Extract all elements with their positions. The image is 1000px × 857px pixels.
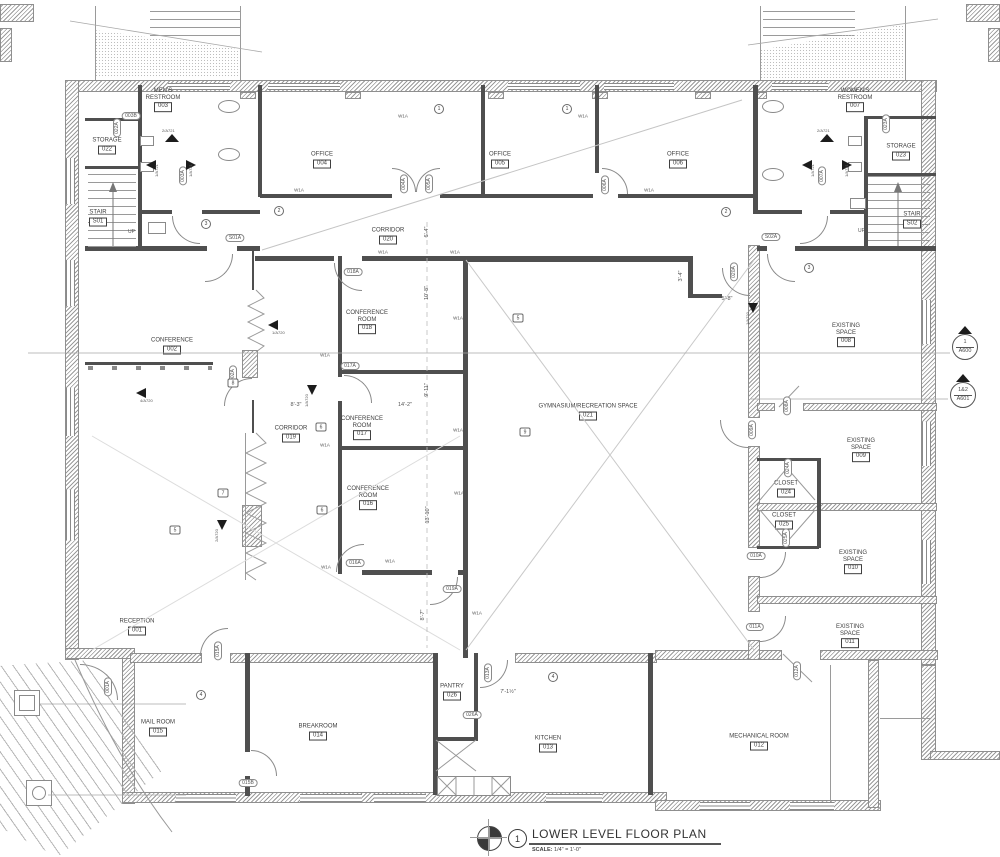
door-tag-013A: 013A bbox=[484, 664, 492, 683]
dim-8-3: 8'-3" bbox=[291, 402, 302, 408]
wall-tag: W1A bbox=[321, 565, 331, 570]
office-leader-line bbox=[262, 100, 742, 250]
door-tag-016A: 016A bbox=[346, 559, 365, 567]
gym-diagonal-lines bbox=[466, 260, 754, 650]
kitchen-sink-divisions bbox=[438, 777, 510, 795]
keynote-hex: 6 bbox=[316, 423, 327, 432]
keynote-hex: 6 bbox=[317, 506, 328, 515]
elev-label: 4/A720 bbox=[140, 398, 153, 403]
wall-tag: W1A bbox=[385, 559, 395, 564]
elev-label: 2/A720 bbox=[214, 529, 219, 542]
door-tag-017A: 017A bbox=[341, 362, 360, 370]
wall-tag: W1A bbox=[450, 250, 460, 255]
door-tag-004A: 004A bbox=[400, 175, 408, 194]
keynote-circle: 1 bbox=[562, 104, 572, 114]
keynote-circle: 3 bbox=[804, 263, 814, 273]
door-tag-023A: 023A bbox=[882, 115, 890, 134]
elev-label: 1/A720 bbox=[304, 394, 309, 407]
stair-arrow-head-s01 bbox=[109, 182, 117, 192]
door-tag-025A: 025A bbox=[782, 529, 790, 548]
door-tag-015A: 015A bbox=[214, 642, 222, 661]
elev-label: 1/A720 bbox=[745, 312, 750, 325]
door-tag-026A: 026A bbox=[463, 711, 482, 719]
keynote-circle: 4 bbox=[548, 672, 558, 682]
wall-tag: W1A bbox=[453, 316, 463, 321]
door-tag-005A: 005A bbox=[425, 175, 433, 194]
elev-label: 2/A721 bbox=[817, 128, 830, 133]
elev-arrow-up-mens bbox=[165, 134, 179, 142]
keynote-hex: 5 bbox=[170, 526, 181, 535]
g bbox=[109, 182, 902, 192]
wall-tag: W1A bbox=[294, 188, 304, 193]
door-tag-018A: 018A bbox=[344, 268, 363, 276]
door-tag-020A: 020A bbox=[730, 263, 738, 282]
g bbox=[75, 186, 898, 832]
dim-14-2: 14'-2" bbox=[398, 402, 412, 408]
door-tag-003B: 003B bbox=[122, 112, 141, 120]
section-marker-a600: 1 A600 bbox=[950, 326, 980, 360]
pantry-double-door bbox=[436, 740, 476, 771]
section-marker-a601: 1&2 A601 bbox=[948, 374, 978, 408]
site-column-lines bbox=[40, 704, 186, 795]
elev-label: 1/A720 bbox=[272, 330, 285, 335]
elev-arrow-corridor-upper bbox=[268, 320, 278, 330]
wall-tag: W1A bbox=[398, 114, 408, 119]
reception-diagonal-lines bbox=[92, 436, 460, 650]
door-tag-008A: 008A bbox=[783, 397, 791, 416]
linework-layer bbox=[0, 0, 1000, 857]
door-tag-007A: 007A bbox=[818, 167, 826, 186]
keynote-circle: 3 bbox=[201, 219, 211, 229]
door-tag-006A: 006A bbox=[601, 176, 609, 195]
elev-label: 1/A721 bbox=[810, 164, 815, 177]
wall-tag: W1A bbox=[320, 353, 330, 358]
section-number: 1&2 bbox=[958, 387, 968, 394]
partition-zigzag-lower bbox=[246, 433, 266, 580]
wall-tag: W1A bbox=[578, 114, 588, 119]
wall-tag: W1A bbox=[320, 443, 330, 448]
dim-8-7: 8'-7" bbox=[420, 610, 426, 621]
keynote-hex: 8 bbox=[228, 379, 239, 388]
dim-10-8: 10'-8" bbox=[424, 286, 430, 300]
elev-arrow-up-womens bbox=[820, 134, 834, 142]
section-sheet: A600 bbox=[956, 347, 975, 355]
dim-5-8: 5'-8" bbox=[722, 296, 733, 302]
section-marker-bubble: 1&2 A601 bbox=[950, 382, 976, 408]
elev-label: 1/A721 bbox=[844, 164, 849, 177]
door-tag-S01A: S01A bbox=[225, 234, 244, 242]
keynote-hex: 7 bbox=[218, 489, 229, 498]
section-number: 1 bbox=[963, 339, 966, 346]
door-tag-001A: 001A bbox=[104, 678, 112, 697]
section-marker-bubble: 1 A600 bbox=[952, 334, 978, 360]
keynote-circle: 1 bbox=[434, 104, 444, 114]
wall-tag: W1A bbox=[644, 188, 654, 193]
dim-9-11: 9'-11" bbox=[424, 383, 430, 397]
section-sheet: A601 bbox=[954, 395, 973, 403]
dim-13-10: 13'-10" bbox=[425, 506, 431, 523]
door-tag-009A: 009A bbox=[748, 421, 756, 440]
door-tag-024A: 024A bbox=[784, 459, 792, 478]
door-tag-012A: 012A bbox=[793, 662, 801, 681]
elev-arrow-conference bbox=[136, 388, 146, 398]
wall-tag: W1A bbox=[453, 428, 463, 433]
floor-plan: MEN'S RESTROOM 003 STORAGE 022 STAIR S01… bbox=[0, 0, 1000, 857]
door-tag-011A: 011A bbox=[746, 623, 764, 631]
door-tag-010A: 010A bbox=[747, 552, 766, 560]
door-tag-015B: 015B bbox=[239, 779, 258, 787]
keynote-hex: 9 bbox=[520, 428, 531, 437]
keynote-circle: 2 bbox=[274, 206, 284, 216]
section-marker-triangle bbox=[956, 374, 970, 382]
wall-tag: W1A bbox=[378, 250, 388, 255]
keynote-circle: 4 bbox=[196, 690, 206, 700]
elev-label: 1/A721 bbox=[188, 164, 193, 177]
door-tag-S02A: S02A bbox=[761, 233, 780, 241]
keynote-hex: 5 bbox=[513, 314, 524, 323]
dim-6-4: 6'-4" bbox=[424, 227, 430, 238]
section-marker-triangle bbox=[958, 326, 972, 334]
dim-7-1half: 7'-1½" bbox=[500, 689, 516, 695]
stair-arrow-head-s02 bbox=[894, 182, 902, 192]
elev-label: 2/A721 bbox=[162, 128, 175, 133]
keynote-circle: 2 bbox=[721, 207, 731, 217]
wall-tag: W1A bbox=[472, 611, 482, 616]
door-tag-019A: 019A bbox=[443, 585, 462, 593]
partition-zigzag-upper bbox=[248, 290, 264, 352]
ramp-slope-lines bbox=[70, 19, 938, 52]
elev-label: 1/A721 bbox=[154, 164, 159, 177]
door-tag-022A: 022A bbox=[113, 119, 121, 138]
dim-3-4: 3'-4" bbox=[678, 271, 684, 282]
wall-tag: W1A bbox=[454, 491, 464, 496]
